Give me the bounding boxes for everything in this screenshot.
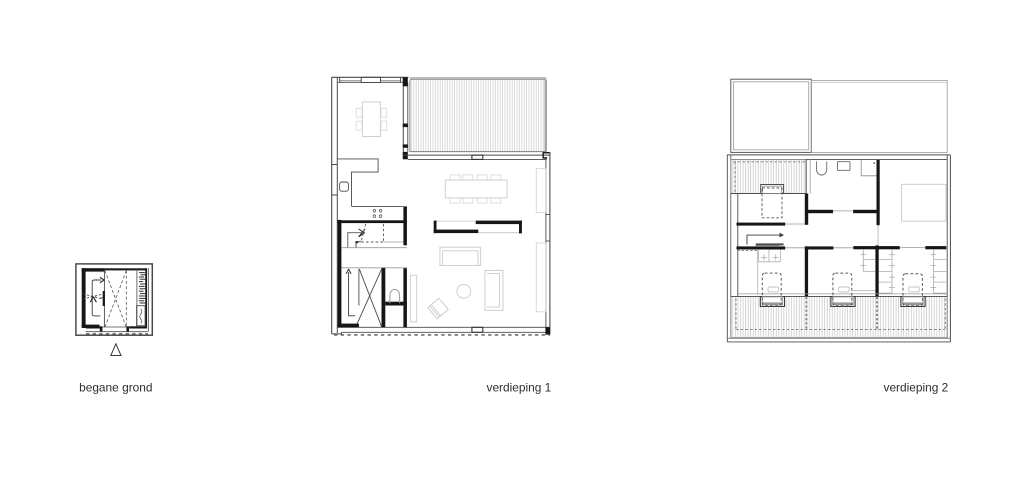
svg-text:verdieping 1: verdieping 1 xyxy=(487,381,552,395)
svg-text:verdieping 2: verdieping 2 xyxy=(884,381,949,395)
svg-text:begane grond: begane grond xyxy=(79,381,152,395)
